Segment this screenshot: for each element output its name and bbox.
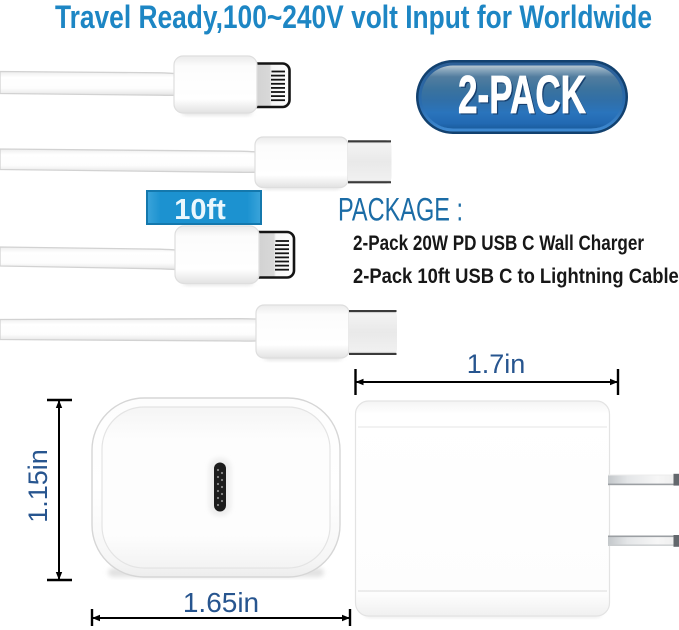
svg-text:1.15in: 1.15in [23,449,53,523]
svg-text:1.65in: 1.65in [183,587,259,618]
svg-text:2-Pack 10ft USB C to Lightning: 2-Pack 10ft USB C to Lightning Cables [353,265,679,288]
svg-text:2-Pack 20W PD USB C Wall Charg: 2-Pack 20W PD USB C Wall Charger [353,232,644,255]
svg-text:1.7in: 1.7in [467,349,526,379]
svg-text:10ft: 10ft [174,194,226,226]
svg-text:Travel Ready,100~240V volt Inp: Travel Ready,100~240V volt Input for Wor… [55,0,652,35]
svg-text:PACKAGE :: PACKAGE : [338,192,463,228]
svg-text:2-PACK: 2-PACK [458,65,586,125]
